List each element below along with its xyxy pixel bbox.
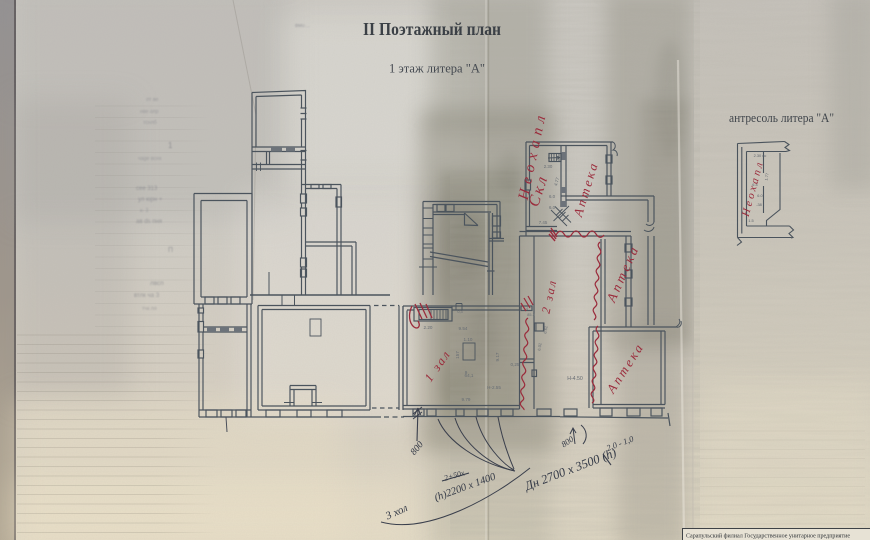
svg-text:85.3: 85.3: [527, 313, 534, 317]
svg-text:к- 3: к- 3: [140, 208, 148, 214]
svg-text:втлк ча З: втлк ча З: [134, 293, 160, 299]
svg-text:ав ds пня: ав ds пня: [136, 219, 162, 225]
svg-text:9.79: 9.79: [462, 397, 471, 402]
svg-text:тчк ля: тчк ля: [142, 306, 157, 312]
svg-text:9.17: 9.17: [495, 352, 500, 361]
svg-text:0,25: 0,25: [511, 362, 520, 367]
svg-text:П: П: [168, 247, 173, 254]
svg-text:Аптека: Аптека: [603, 242, 642, 305]
svg-text:нве апр: нве апр: [140, 109, 159, 115]
svg-text:4.77: 4.77: [553, 176, 560, 186]
svg-text:6.0: 6.0: [757, 193, 763, 198]
svg-text:Неохапл: Неохапл: [740, 159, 767, 219]
svg-text:6.02: 6.02: [536, 342, 542, 351]
svg-text:лт ве: лт ве: [146, 97, 159, 103]
svg-text:1 зал: 1 зал: [422, 347, 454, 384]
svg-text:чage вснх: чage вснх: [138, 156, 162, 162]
svg-text:1.77: 1.77: [763, 173, 769, 181]
svg-text:Н-2.55: Н-2.55: [487, 385, 501, 390]
svg-text:6.4: 6.4: [752, 182, 758, 187]
svg-text:800: 800: [559, 433, 576, 449]
svg-text:Дн 2700 х 3500 (h): Дн 2700 х 3500 (h): [522, 445, 618, 493]
svg-text:6.0: 6.0: [549, 194, 556, 199]
svg-text:6.62: 6.62: [542, 325, 548, 334]
svg-text:Сарапульский филиал Государст: Сарапульский филиал Государственное унит…: [686, 533, 850, 540]
svg-text:1: 1: [168, 141, 173, 150]
svg-text:сее 313: сее 313: [136, 186, 158, 192]
svg-text:Н-4.50: Н-4.50: [567, 376, 583, 382]
svg-text:II Поэтажный план: II Поэтажный план: [363, 19, 501, 39]
svg-text:вмυ…: вмυ…: [295, 23, 310, 29]
svg-text:1 этаж литера "А": 1 этаж литера "А": [389, 62, 485, 76]
svg-text:2.30 пс: 2.30 пс: [754, 153, 767, 158]
svg-text:1.5: 1.5: [748, 218, 753, 223]
svg-text:2 зал: 2 зал: [539, 278, 560, 315]
svg-text:157: 157: [455, 351, 460, 359]
svg-text:2,0 - 1,0: 2,0 - 1,0: [605, 433, 636, 453]
svg-text:64,1: 64,1: [465, 373, 474, 378]
svg-text:-38: -38: [756, 202, 762, 207]
svg-text:тснлб: тснлб: [143, 120, 157, 126]
svg-text:лвсп: лвсп: [150, 280, 164, 287]
svg-text:0,3: 0,3: [457, 310, 462, 314]
svg-text:ул юрн +: ул юрн +: [138, 197, 163, 203]
svg-text:2+50х: 2+50х: [443, 468, 466, 483]
svg-text:1.10: 1.10: [464, 337, 473, 342]
svg-text:антресоль литера "А": антресоль литера "А": [729, 111, 834, 125]
svg-text:9.54: 9.54: [459, 326, 468, 331]
svg-text:800: 800: [409, 440, 426, 458]
svg-text:3 хол: 3 хол: [383, 502, 410, 523]
svg-text:Аптека: Аптека: [603, 339, 647, 396]
svg-text:Аптека: Аптека: [570, 159, 601, 219]
svg-text:6.0: 6.0: [549, 205, 556, 210]
svg-text:7.45: 7.45: [539, 220, 548, 225]
svg-text:2.20: 2.20: [424, 325, 433, 330]
svg-text:2.30: 2.30: [544, 164, 553, 169]
